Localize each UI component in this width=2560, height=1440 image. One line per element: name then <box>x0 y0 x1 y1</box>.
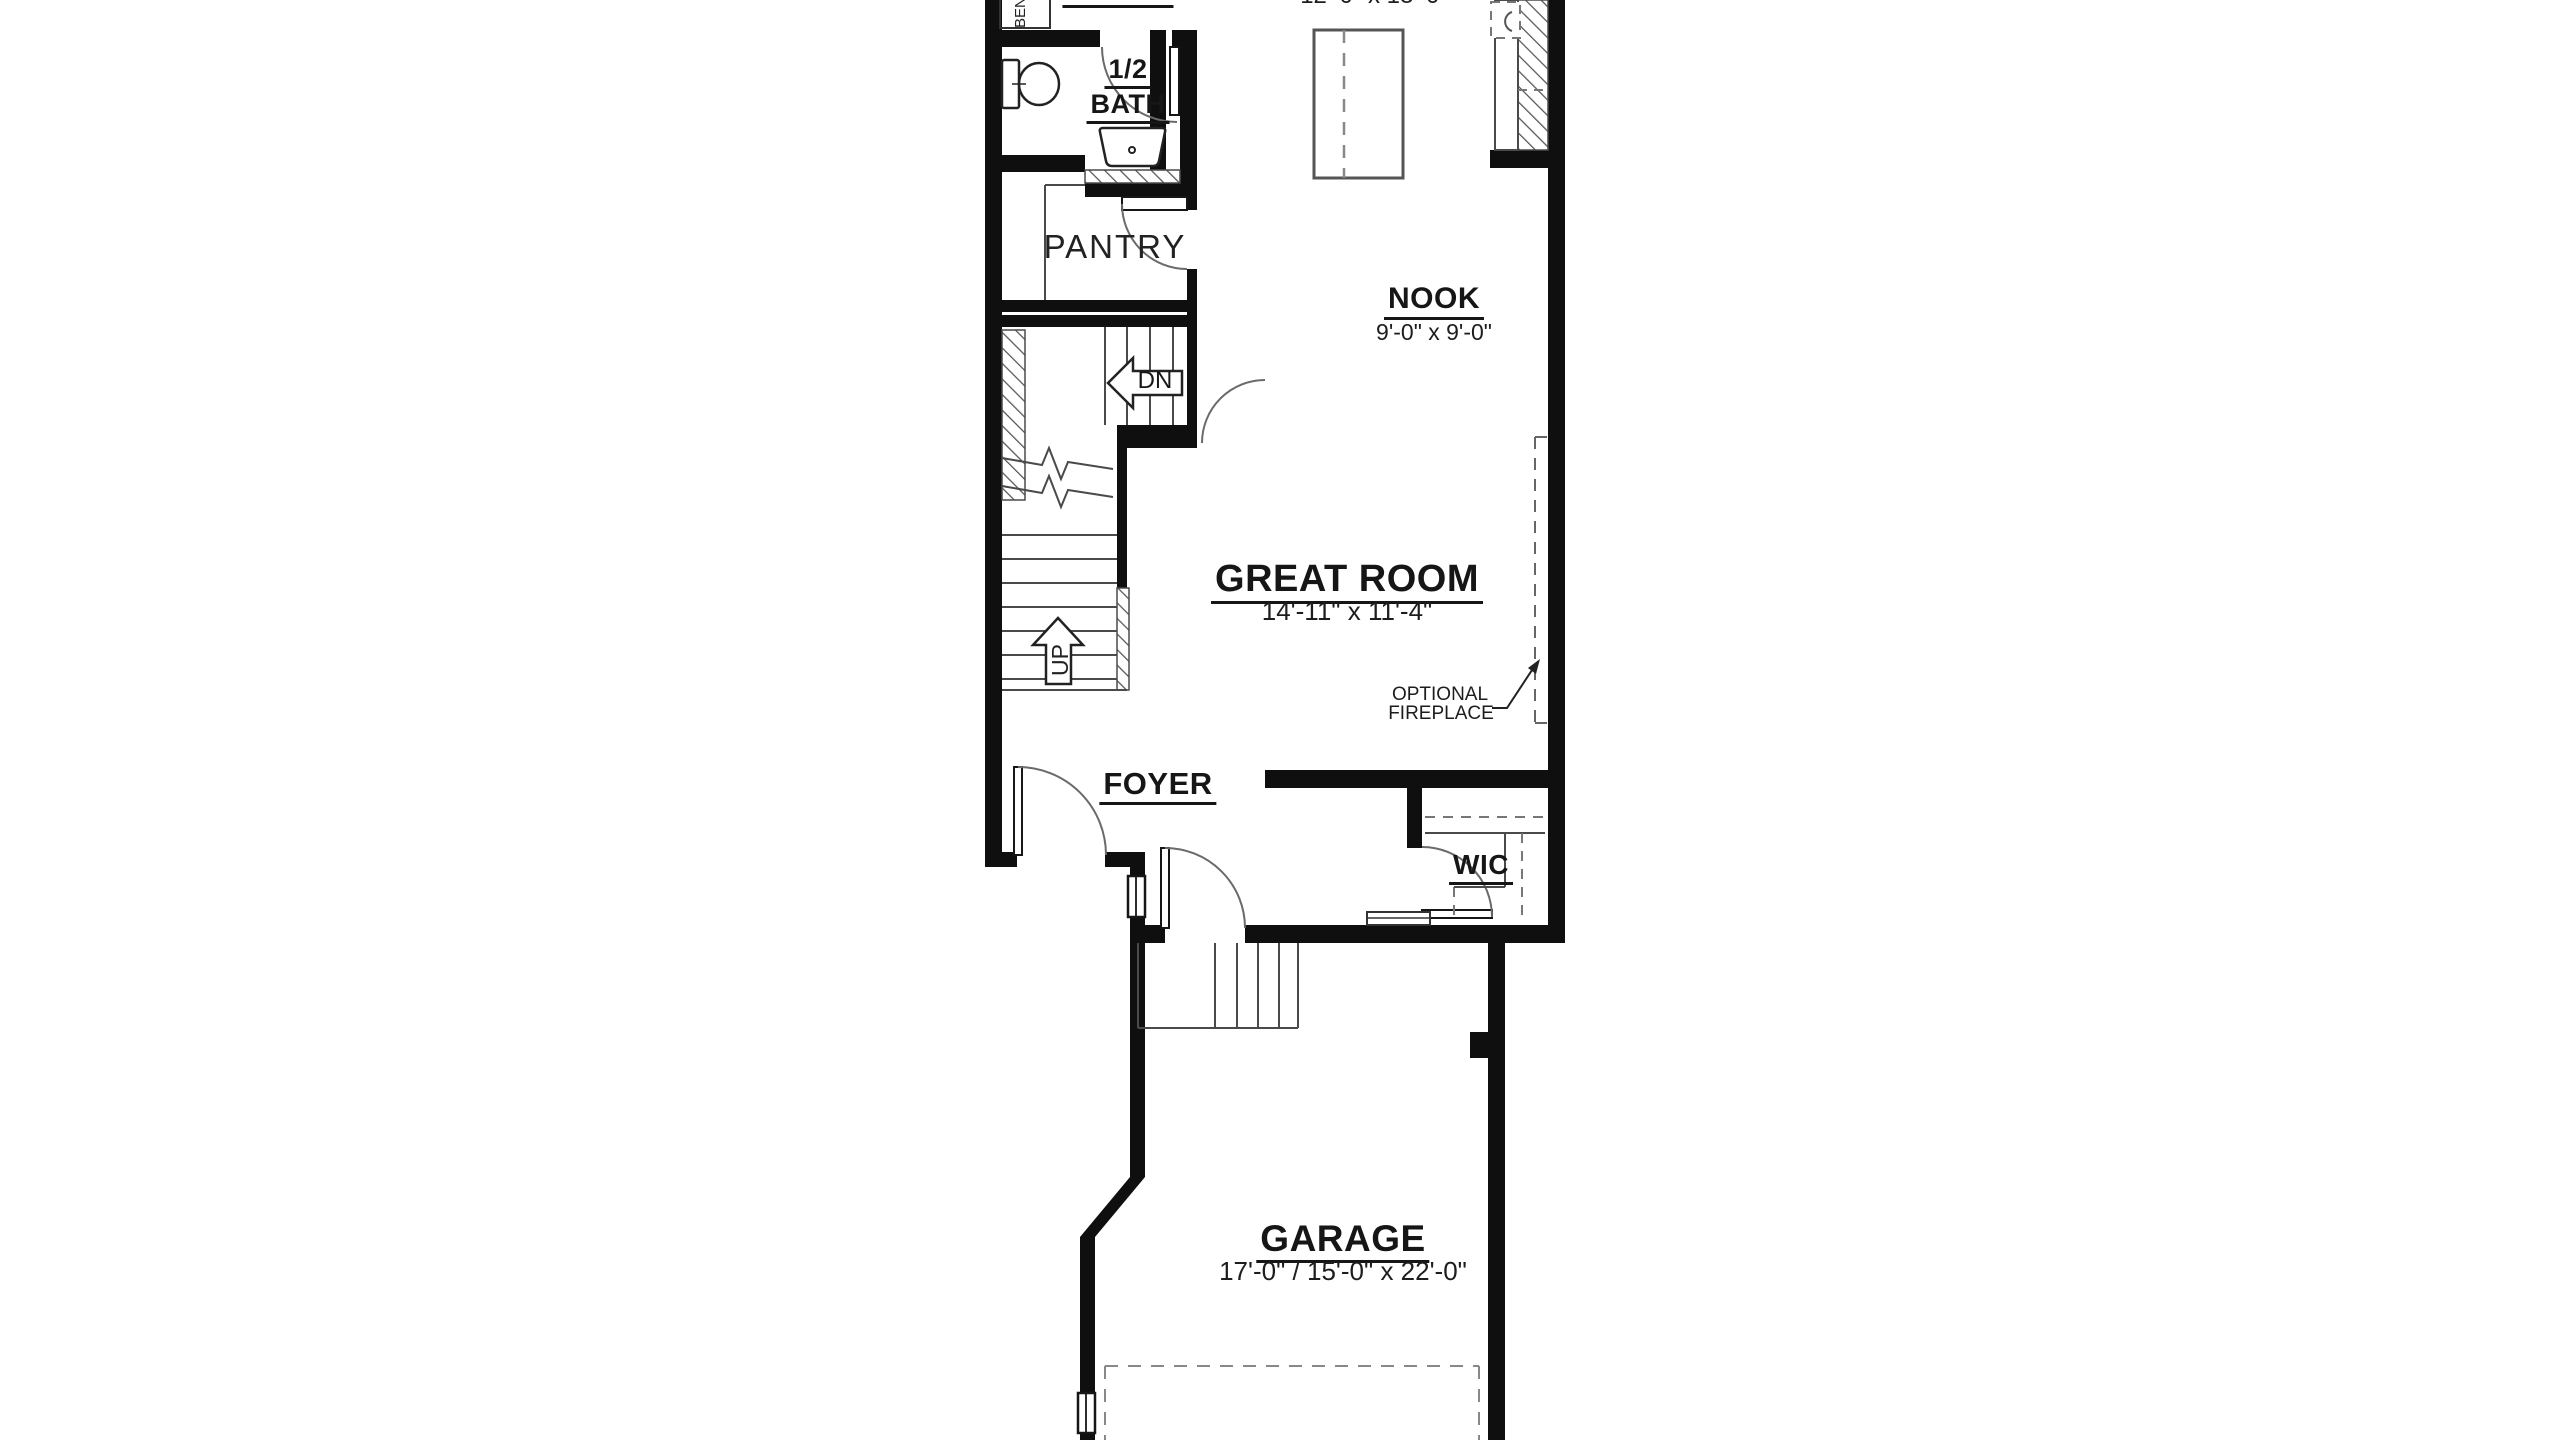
kitchen-dimensions: 12'-0" x 13'-0" <box>1300 0 1448 8</box>
bench-label: BENCH <box>1012 0 1029 28</box>
garage-stairs <box>1138 943 1298 1028</box>
nook-dimensions: 9'-0" x 9'-0" <box>1376 321 1492 344</box>
entry-label: ENTRY <box>1062 0 1173 8</box>
bath-bottom-wall-right <box>1085 183 1197 197</box>
garage-dimensions: 17'-0" / 15'-0" x 22'-0" <box>1219 1258 1467 1284</box>
fireplace-note-2: FIREPLACE <box>1388 704 1494 724</box>
pantry-bottom-wall <box>985 300 1197 312</box>
foyer-greatroom-wall <box>1265 770 1553 788</box>
stair-rail-wall <box>1117 448 1127 588</box>
foyer-label: FOYER <box>1099 768 1216 805</box>
pantry-label: PANTRY <box>1044 230 1187 263</box>
right-exterior-wall <box>1548 0 1565 943</box>
stairs-up-label: UP <box>1047 644 1074 676</box>
nook-label: NOOK <box>1384 284 1484 320</box>
direction-arrows <box>1033 358 1182 684</box>
foyer-garage-wall <box>1245 925 1565 943</box>
garage-angled-wall <box>1080 1177 1145 1237</box>
stair-landing-door-swing <box>1202 380 1265 443</box>
half-bath-label-1: 1/2 <box>1104 56 1151 89</box>
stair-rail-hatch <box>1117 588 1129 690</box>
wic-label: WIC <box>1449 851 1513 885</box>
kitchen-counter-end-wall <box>1490 150 1565 168</box>
bath-top-wall <box>999 30 1100 47</box>
kitchen-island <box>1314 30 1403 178</box>
kitchen-counter-hatch <box>1518 0 1548 150</box>
stairwell-top-wall <box>985 315 1197 327</box>
garage-right-wall <box>1488 943 1505 1440</box>
foyer-shelf <box>1367 912 1430 925</box>
kitchen-side-wall <box>1180 30 1197 197</box>
garage-left-wall <box>1080 1237 1095 1393</box>
fireplace-leader-line <box>1492 664 1536 708</box>
fireplace-note-1: OPTIONAL <box>1392 685 1488 705</box>
half-bath-label-2: BATH <box>1087 91 1170 124</box>
vanity-counter-hatch <box>1085 170 1180 183</box>
sink-drain <box>1129 147 1135 153</box>
wic-left-wall <box>1407 788 1422 848</box>
garage-parking-outline <box>1105 1366 1479 1440</box>
left-exterior-wall <box>985 0 1002 852</box>
optional-fireplace <box>1492 437 1548 723</box>
garage-entry-door <box>1161 848 1245 928</box>
stair-bottom-wall <box>1117 425 1197 448</box>
stair-side-hatch <box>1002 330 1025 500</box>
floorplan-canvas: ENTRY BENCH 12'-0" x 13'-0" 1/2 BATH PAN… <box>0 0 2560 1440</box>
fireplace-outline <box>1535 437 1548 723</box>
great-room-dimensions: 14'-11" x 11'-4" <box>1262 598 1433 624</box>
front-entry-door <box>1014 767 1106 855</box>
bath-bottom-wall-left <box>999 155 1085 172</box>
stairs-down-label: DN <box>1138 369 1173 393</box>
